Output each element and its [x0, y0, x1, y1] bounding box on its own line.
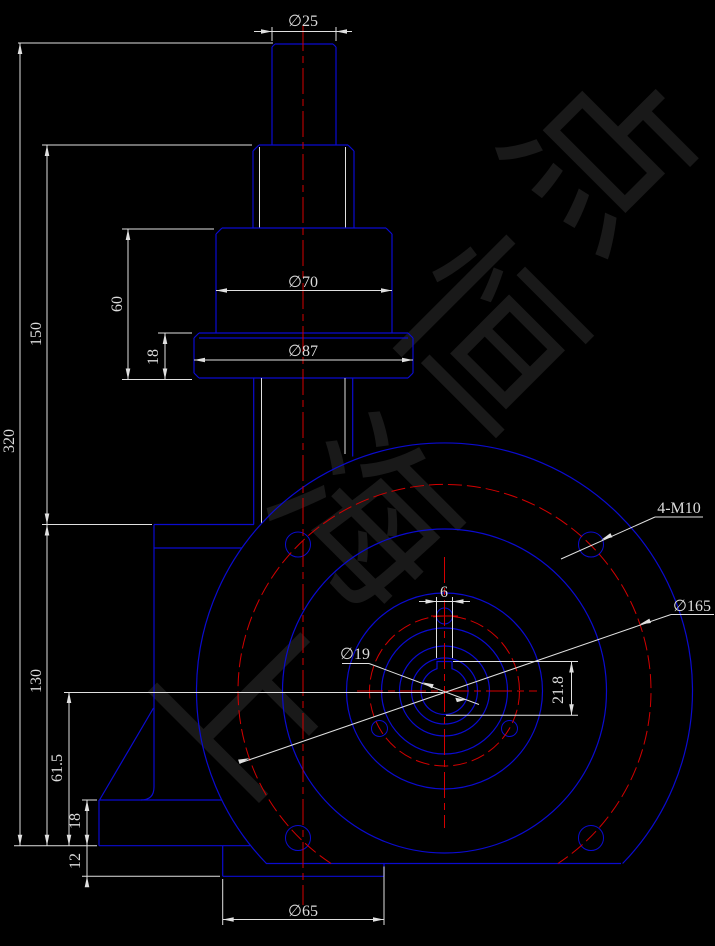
- dim-foot-height: 18: [67, 813, 84, 829]
- dim-bolt-circle-dia: ∅165: [673, 598, 711, 615]
- dim-shaft-dia: ∅25: [288, 13, 318, 30]
- dim-hub-height: 60: [109, 296, 126, 312]
- watermark: 上 海 恒 点: [119, 26, 715, 832]
- dia19-leader: [369, 664, 479, 705]
- dim-overall-height: 320: [1, 429, 18, 453]
- m10-hole: [579, 532, 604, 557]
- gearbox-drawing: 上 海 恒 点: [0, 0, 715, 946]
- dim-foot-to-center: 61.5: [49, 754, 66, 782]
- dim-flange-dia: ∅87: [288, 343, 318, 360]
- dim-flange-thickness: 18: [145, 349, 162, 365]
- dim-bore-dia: ∅19: [340, 646, 370, 663]
- dim-keyway-depth: 21.8: [550, 676, 567, 704]
- dim-boss-dia: ∅65: [288, 903, 318, 920]
- m10-hole: [579, 826, 604, 851]
- dim-thread-callout: 4-M10: [657, 500, 701, 517]
- dim-hub-dia: ∅70: [288, 274, 318, 291]
- dim-lower-height: 130: [28, 669, 45, 693]
- cad-drawing-canvas: 上 海 恒 点: [0, 0, 715, 946]
- dim-keyway-width: 6: [440, 584, 448, 601]
- dim-upper-height: 150: [28, 322, 45, 346]
- m10-hole: [286, 826, 311, 851]
- dim-boss-protrusion: 12: [67, 853, 84, 869]
